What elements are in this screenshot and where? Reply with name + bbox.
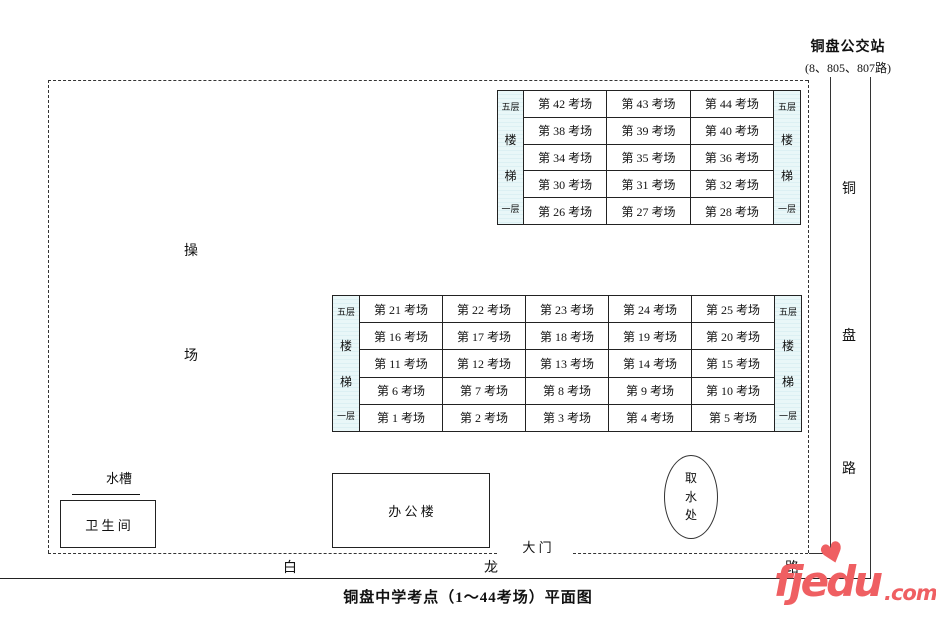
water-point: 取 水 处 <box>664 455 718 539</box>
exam-room-cell: 第 11 考场 <box>360 350 442 376</box>
watermark-text: fjedu <box>774 557 880 606</box>
playground-label: 操 <box>183 240 199 260</box>
exam-room-cell: 第 26 考场 <box>524 198 606 224</box>
stair-label: 楼 <box>781 131 793 148</box>
boundary-top <box>48 80 808 81</box>
exam-room-cell: 第 7 考场 <box>443 378 525 404</box>
tongpan-road-label: 路 <box>841 458 857 478</box>
exam-room-cell: 第 18 考场 <box>526 323 608 349</box>
stair-label: 五层 <box>337 305 355 318</box>
water-trough-label: 水槽 <box>92 468 146 487</box>
exam-room-cell: 第 23 考场 <box>526 296 608 322</box>
bus-station-name: 铜盘公交站 <box>762 36 934 56</box>
water-point-label: 处 <box>685 506 697 525</box>
stair-column: 五层楼梯一层 <box>775 296 801 431</box>
office-building: 办 公 楼 <box>332 473 490 548</box>
water-point-label: 水 <box>685 488 697 507</box>
stair-label: 一层 <box>778 202 796 215</box>
exam-room-cell: 第 40 考场 <box>691 118 773 144</box>
gate-label: 大 门 <box>500 537 574 556</box>
water-point-label: 取 <box>685 469 697 488</box>
exam-room-cell: 第 28 考场 <box>691 198 773 224</box>
exam-room-cell: 第 8 考场 <box>526 378 608 404</box>
stair-label: 梯 <box>782 373 794 390</box>
stair-label: 梯 <box>340 373 352 390</box>
exam-room-cell: 第 16 考场 <box>360 323 442 349</box>
exam-room-cell: 第 21 考场 <box>360 296 442 322</box>
exam-room-cell: 第 4 考场 <box>609 405 691 431</box>
stair-label: 楼 <box>340 337 352 354</box>
tongpan-road-outer-edge <box>870 77 871 578</box>
tongpan-road-inner-edge <box>830 77 831 553</box>
exam-room-cell: 第 10 考场 <box>692 378 774 404</box>
stair-label: 楼 <box>504 131 516 148</box>
stair-label: 五层 <box>779 305 797 318</box>
main-building: 五层楼梯一层第 21 考场第 22 考场第 23 考场第 24 考场第 25 考… <box>332 295 802 432</box>
stair-column: 五层楼梯一层 <box>774 91 800 224</box>
exam-room-cell: 第 43 考场 <box>607 91 689 117</box>
exam-room-cell: 第 35 考场 <box>607 145 689 171</box>
stair-label: 五层 <box>501 100 519 113</box>
stair-label: 梯 <box>504 167 516 184</box>
exam-room-cell: 第 6 考场 <box>360 378 442 404</box>
exam-room-cell: 第 20 考场 <box>692 323 774 349</box>
exam-room-cell: 第 17 考场 <box>443 323 525 349</box>
exam-room-cell: 第 44 考场 <box>691 91 773 117</box>
exam-room-cell: 第 22 考场 <box>443 296 525 322</box>
bailong-road-label: 龙 <box>483 557 499 577</box>
stair-label: 楼 <box>782 337 794 354</box>
stair-label: 梯 <box>781 167 793 184</box>
exam-room-cell: 第 32 考场 <box>691 171 773 197</box>
stair-column: 五层楼梯一层 <box>498 91 523 224</box>
top-building: 五层楼梯一层第 42 考场第 43 考场第 44 考场第 38 考场第 39 考… <box>497 90 801 225</box>
exam-room-cell: 第 27 考场 <box>607 198 689 224</box>
boundary-bottom-left <box>48 553 497 554</box>
boundary-left <box>48 80 49 553</box>
exam-room-cell: 第 39 考场 <box>607 118 689 144</box>
bus-station-label: 铜盘公交站 (8、805、807路) <box>762 36 934 76</box>
exam-room-cell: 第 5 考场 <box>692 405 774 431</box>
exam-room-cell: 第 2 考场 <box>443 405 525 431</box>
exam-room-cell: 第 15 考场 <box>692 350 774 376</box>
bailong-road-line <box>0 578 871 579</box>
tongpan-road-label: 铜 <box>841 178 857 198</box>
stair-column: 五层楼梯一层 <box>333 296 359 431</box>
tongpan-road-label: 盘 <box>841 325 857 345</box>
restroom-building: 卫 生 间 <box>60 500 156 548</box>
exam-room-cell: 第 38 考场 <box>524 118 606 144</box>
exam-room-cell: 第 36 考场 <box>691 145 773 171</box>
exam-room-cell: 第 19 考场 <box>609 323 691 349</box>
boundary-right <box>808 80 809 553</box>
exam-room-cell: 第 31 考场 <box>607 171 689 197</box>
exam-room-cell: 第 24 考场 <box>609 296 691 322</box>
water-trough-line <box>72 494 140 495</box>
stair-label: 一层 <box>337 409 355 422</box>
exam-room-cell: 第 14 考场 <box>609 350 691 376</box>
watermark-suffix: .com <box>884 581 936 605</box>
exam-room-cell: 第 25 考场 <box>692 296 774 322</box>
exam-room-cell: 第 9 考场 <box>609 378 691 404</box>
exam-room-cell: 第 34 考场 <box>524 145 606 171</box>
playground-label: 场 <box>183 345 199 365</box>
bus-station-routes: (8、805、807路) <box>762 59 934 76</box>
exam-room-cell: 第 1 考场 <box>360 405 442 431</box>
exam-room-cell: 第 13 考场 <box>526 350 608 376</box>
exam-room-cell: 第 42 考场 <box>524 91 606 117</box>
exam-room-cell: 第 30 考场 <box>524 171 606 197</box>
exam-room-cell: 第 3 考场 <box>526 405 608 431</box>
stair-label: 五层 <box>778 100 796 113</box>
stair-label: 一层 <box>501 202 519 215</box>
bailong-road-label: 白 <box>282 557 298 577</box>
exam-room-cell: 第 12 考场 <box>443 350 525 376</box>
exam-site-plan: 铜盘公交站 (8、805、807路) 铜 盘 路 操 场 五层楼梯一层第 42 … <box>0 0 936 622</box>
stair-label: 一层 <box>779 409 797 422</box>
watermark: ♥ fjedu .com <box>772 549 936 615</box>
